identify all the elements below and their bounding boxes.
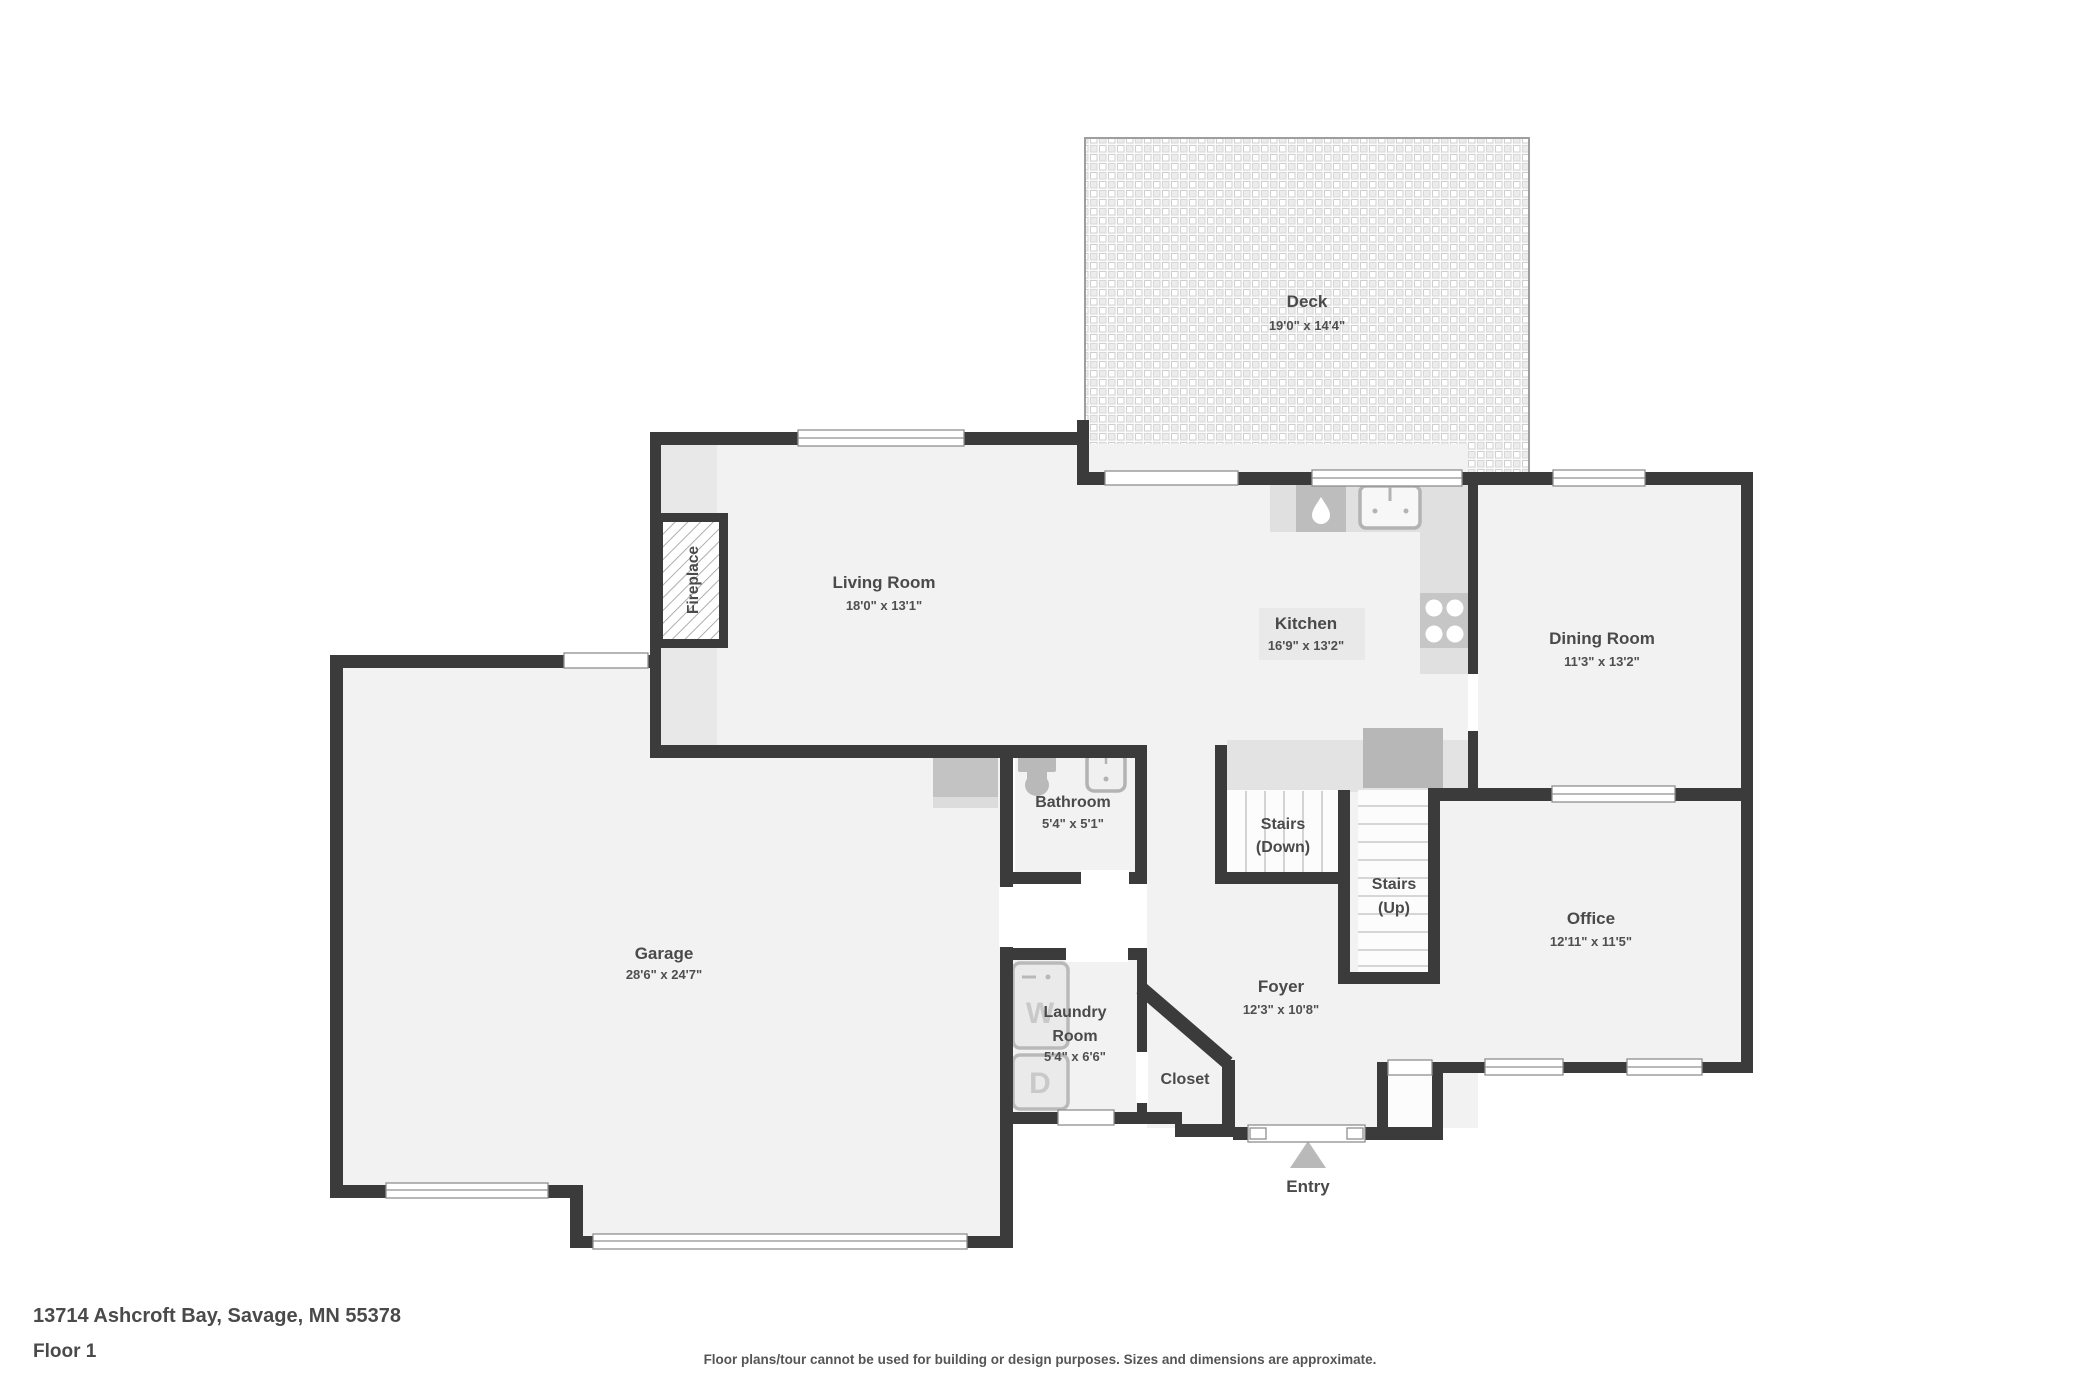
kitchen-label: Kitchen	[1275, 614, 1337, 633]
laundry-window	[1058, 1110, 1114, 1125]
bathroom-sink-icon	[1087, 753, 1125, 791]
foyer-dims: 12'3" x 10'8"	[1243, 1002, 1319, 1017]
entry-niche-floor	[1388, 1072, 1432, 1127]
garage-step-lower	[933, 797, 998, 808]
bathroom-label: Bathroom	[1035, 794, 1111, 811]
laundry-label-2: Room	[1052, 1028, 1097, 1045]
floor-label-text: Floor 1	[33, 1341, 97, 1362]
floor-plan-canvas: W D	[0, 0, 2080, 1386]
bathroom-dims: 5'4" x 5'1"	[1042, 816, 1104, 831]
entry-door-cap-right	[1347, 1128, 1363, 1139]
disclaimer-text: Floor plans/tour cannot be used for buil…	[704, 1352, 1377, 1367]
stairs-down-label-2: (Down)	[1256, 839, 1310, 856]
office-floor	[1440, 800, 1741, 1062]
living-room-dims: 18'0" x 13'1"	[846, 598, 922, 613]
laundry-door-opening	[1066, 946, 1128, 962]
garage-entry-door-opening	[999, 887, 1014, 947]
kitchen-double-sink-icon	[1360, 486, 1420, 528]
kitchen-dims: 16'9" x 13'2"	[1268, 638, 1344, 653]
laundry-side-door-opening	[1136, 1052, 1148, 1103]
stairs-down-label-1: Stairs	[1261, 816, 1306, 833]
stairs-up-label-2: (Up)	[1378, 900, 1410, 917]
stove-icon	[1420, 593, 1469, 648]
foyer-label: Foyer	[1258, 977, 1305, 996]
fireplace: Fireplace	[654, 513, 728, 648]
deck-dims: 19'0" x 14'4"	[1269, 318, 1345, 333]
closet-label: Closet	[1161, 1071, 1211, 1088]
garage-step-upper	[933, 757, 998, 797]
garage-dims: 28'6" x 24'7"	[626, 967, 702, 982]
garage-label: Garage	[635, 944, 694, 963]
kitchen-island	[1363, 728, 1443, 788]
office-dims: 12'11" x 11'5"	[1550, 934, 1632, 949]
deck-label: Deck	[1287, 292, 1328, 311]
dining-room-label: Dining Room	[1549, 629, 1655, 648]
address-text: 13714 Ashcroft Bay, Savage, MN 55378	[33, 1305, 401, 1327]
bathroom-door-opening	[1081, 870, 1129, 886]
entry-label: Entry	[1286, 1177, 1330, 1196]
dining-room-dims: 11'3" x 13'2"	[1564, 654, 1640, 669]
deck-sliding-door	[1105, 471, 1238, 485]
kitchen-sink-icon	[1296, 485, 1346, 532]
fireplace-label: Fireplace	[685, 546, 702, 614]
entry-door-cap-left	[1250, 1128, 1266, 1139]
dryer-letter: D	[1029, 1067, 1051, 1100]
floor-plan-page: W D	[0, 0, 2080, 1386]
living-room-label: Living Room	[833, 573, 936, 592]
garage-top-window	[564, 653, 648, 668]
office-label: Office	[1567, 909, 1615, 928]
laundry-label-1: Laundry	[1043, 1004, 1106, 1021]
entry-niche-window	[1388, 1060, 1432, 1075]
laundry-dims: 5'4" x 6'6"	[1044, 1049, 1106, 1064]
stairs-up-label-1: Stairs	[1372, 876, 1417, 893]
